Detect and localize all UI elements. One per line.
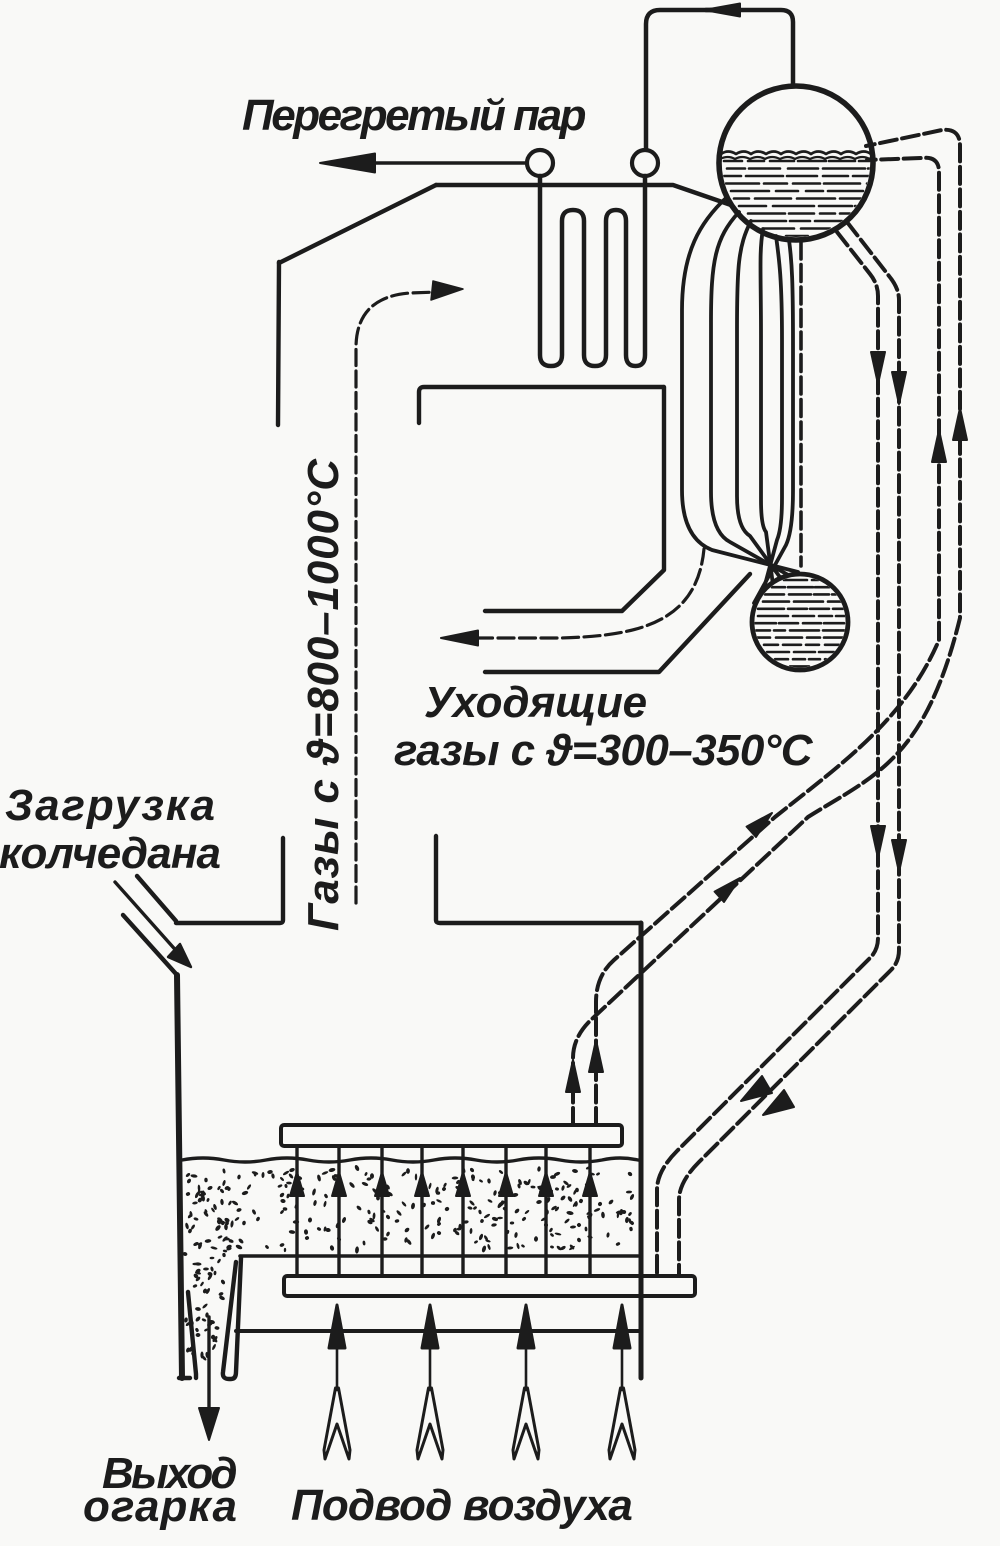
svg-text:колчедана: колчедана [0,829,221,878]
svg-text:Подвод воздуха: Подвод воздуха [291,1481,632,1530]
svg-text:Уходящие: Уходящие [424,678,647,727]
svg-text:Перегретый пар: Перегретый пар [242,91,586,140]
svg-text:Газы с ϑ=800–1000°С: Газы с ϑ=800–1000°С [299,458,348,931]
svg-text:Загрузка: Загрузка [5,781,217,830]
svg-text:газы с ϑ=300–350°С: газы с ϑ=300–350°С [394,726,814,775]
svg-text:огарка: огарка [83,1482,238,1531]
